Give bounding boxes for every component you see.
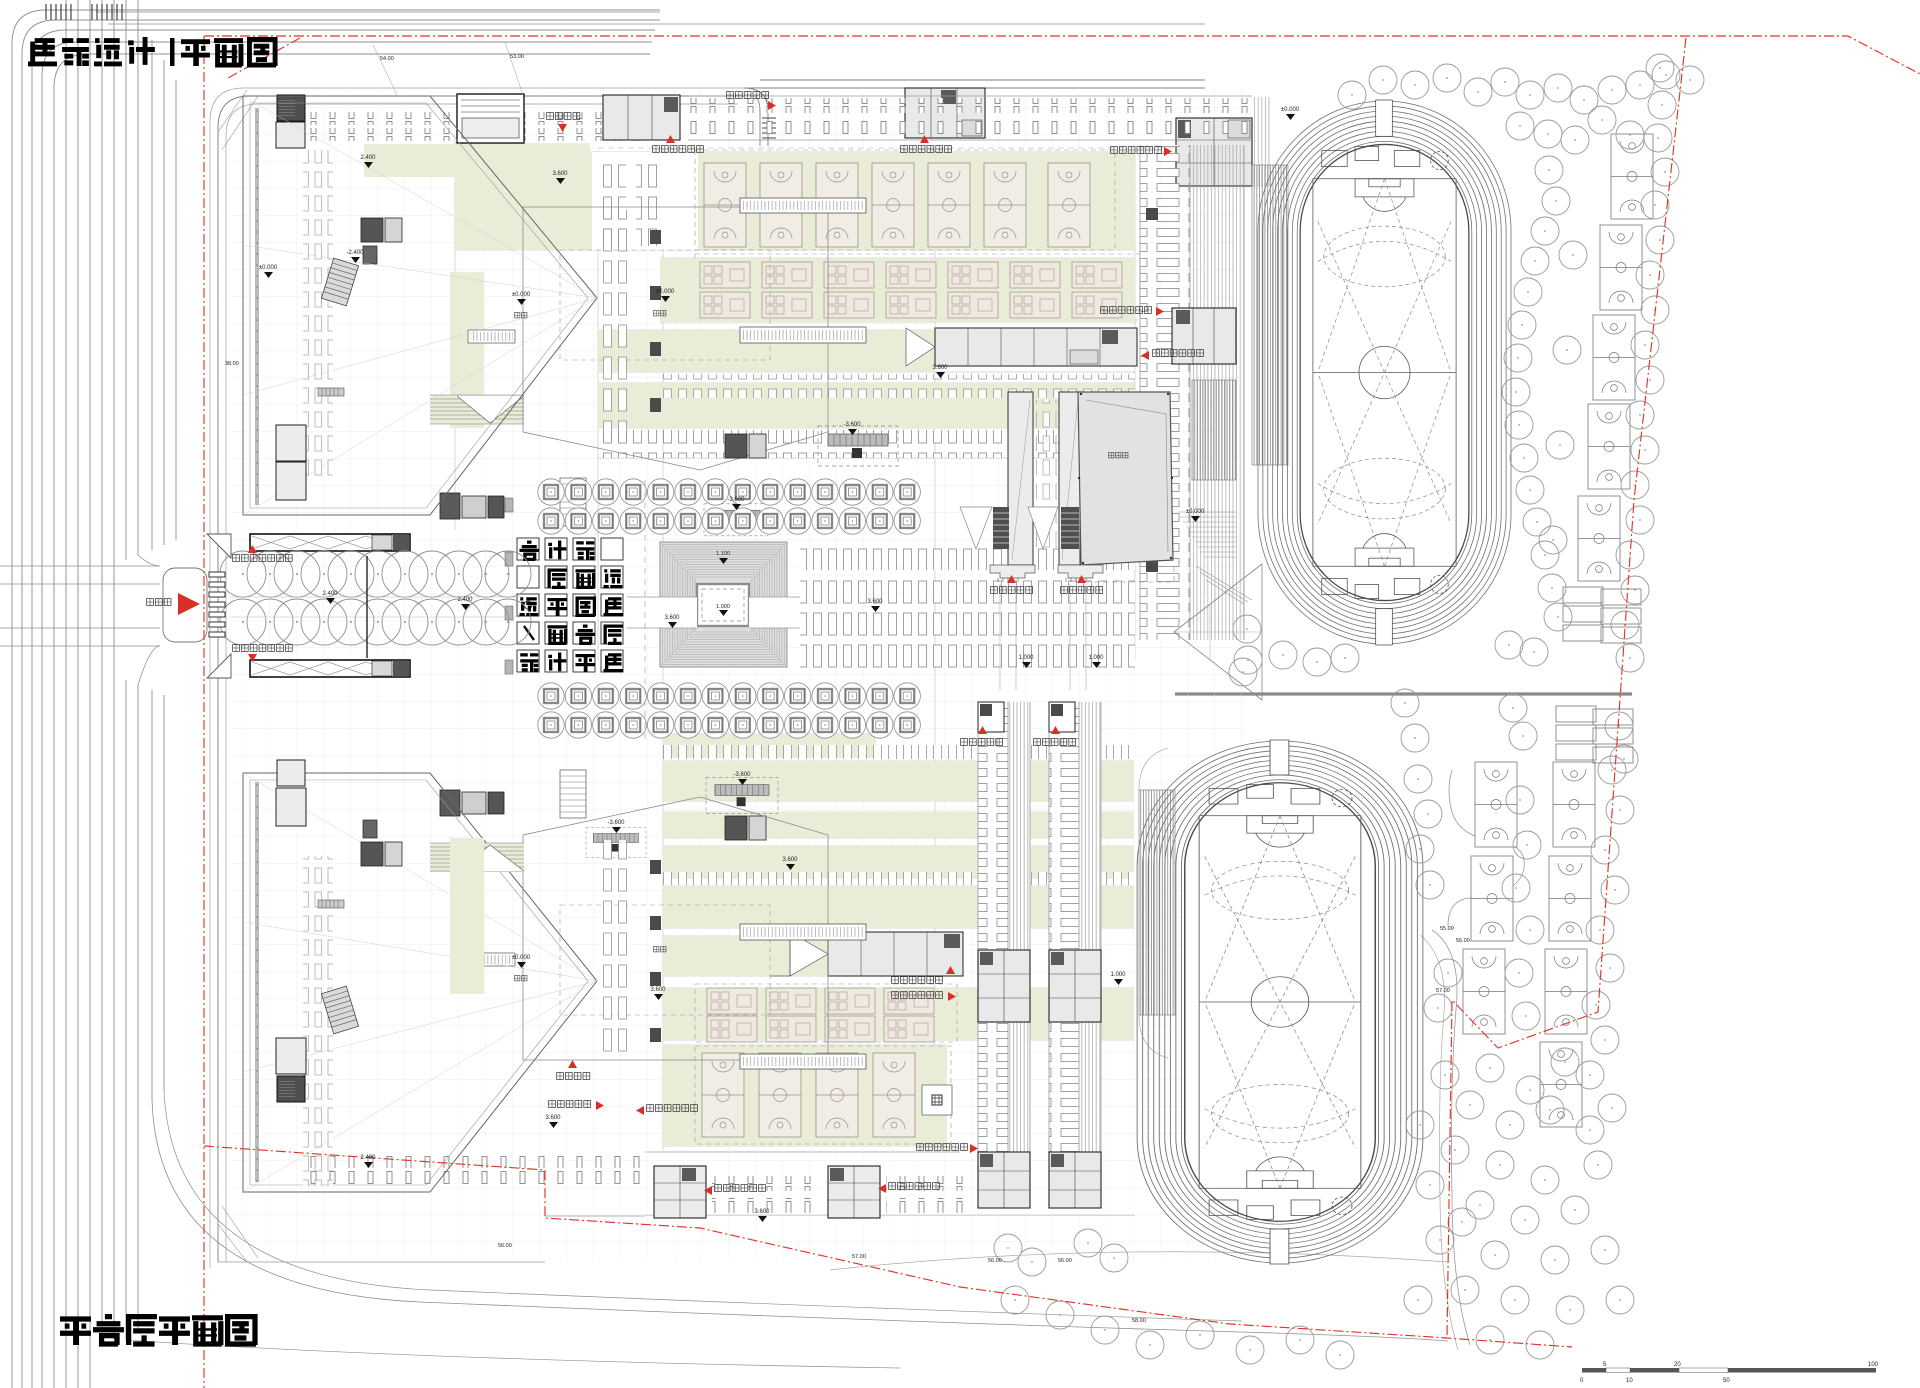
svg-text:50: 50: [1723, 1378, 1730, 1384]
svg-text:2.400: 2.400: [360, 1155, 376, 1161]
svg-text:56.00: 56.00: [498, 1243, 512, 1249]
svg-text:56.00: 56.00: [1058, 1258, 1072, 1264]
svg-text:38.00: 38.00: [225, 361, 239, 367]
svg-text:-3.600: -3.600: [727, 497, 745, 503]
svg-text:-3.600: -3.600: [843, 422, 861, 428]
svg-text:10: 10: [1626, 1378, 1633, 1384]
svg-text:±0.000: ±0.000: [259, 265, 278, 271]
svg-text:54.00: 54.00: [380, 56, 394, 62]
svg-text:-3.600: -3.600: [607, 820, 625, 826]
svg-text:2.400: 2.400: [322, 591, 338, 597]
svg-text:3.600: 3.600: [932, 365, 948, 371]
svg-text:±0.000: ±0.000: [512, 955, 531, 961]
svg-text:1.000: 1.000: [1018, 655, 1034, 661]
svg-text:±0.000: ±0.000: [656, 289, 675, 295]
svg-text:3.600: 3.600: [650, 987, 666, 993]
svg-text:2.400: 2.400: [457, 597, 473, 603]
svg-text:3.600: 3.600: [664, 615, 680, 621]
svg-text:20: 20: [1674, 1362, 1681, 1368]
svg-text:100: 100: [1868, 1362, 1879, 1368]
svg-text:2.400: 2.400: [360, 155, 376, 161]
svg-text:58.00: 58.00: [1132, 1318, 1146, 1324]
svg-text:3.600: 3.600: [552, 171, 568, 177]
svg-text:57.00: 57.00: [852, 1254, 866, 1260]
svg-text:-3.600: -3.600: [733, 772, 751, 778]
svg-text:1.000: 1.000: [1110, 972, 1126, 978]
svg-text:55.00: 55.00: [1440, 926, 1454, 932]
svg-text:±0.000: ±0.000: [512, 292, 531, 298]
svg-text:3.600: 3.600: [754, 1209, 770, 1215]
svg-text:57.00: 57.00: [1436, 988, 1450, 994]
svg-text:3.600: 3.600: [782, 857, 798, 863]
svg-text:3.600: 3.600: [867, 599, 883, 605]
svg-text:±0.000: ±0.000: [1281, 107, 1300, 113]
svg-text:1.100: 1.100: [716, 551, 730, 557]
svg-text:53.00: 53.00: [510, 54, 524, 60]
svg-text:56.00: 56.00: [1456, 938, 1470, 944]
svg-text:56.00: 56.00: [988, 1258, 1002, 1264]
svg-text:±0.000: ±0.000: [1186, 509, 1205, 515]
svg-text:-2.400: -2.400: [346, 250, 364, 256]
svg-text:3.600: 3.600: [545, 1115, 561, 1121]
svg-text:1.000: 1.000: [716, 604, 730, 610]
svg-text:1.000: 1.000: [1088, 655, 1104, 661]
